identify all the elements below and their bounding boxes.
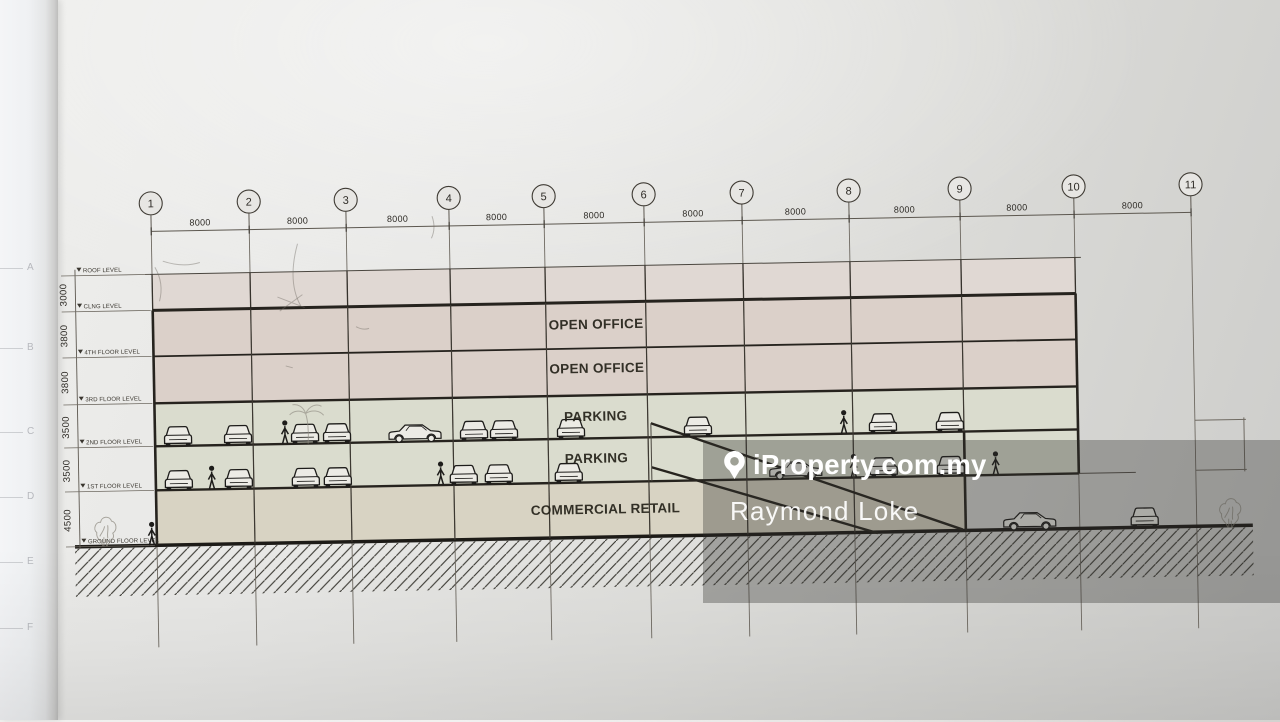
roof-column-stub xyxy=(152,274,153,310)
roof-column-stub xyxy=(347,271,348,307)
level-marker-icon xyxy=(80,484,85,488)
floor-label: PARKING xyxy=(565,450,629,466)
roof-column-stub xyxy=(545,267,546,303)
grid-number: 9 xyxy=(956,183,962,195)
level-label: 4TH FLOOR LEVEL xyxy=(84,349,140,356)
car-icon xyxy=(292,468,319,488)
bay-dimension: 8000 xyxy=(682,208,703,218)
level-tick xyxy=(61,274,150,276)
level-marker-icon xyxy=(80,440,85,444)
roof-column-stub xyxy=(1075,257,1076,293)
car-icon xyxy=(165,470,192,490)
grid-number: 6 xyxy=(640,189,646,201)
map-pin-icon xyxy=(723,450,746,480)
grid-number: 5 xyxy=(541,191,547,203)
roof-column-stub xyxy=(250,273,251,309)
grid-number: 2 xyxy=(246,197,252,209)
photo-of-section-drawing: { "colors": { "paper": "#e7e6e3", "roof_… xyxy=(0,0,1280,720)
level-marker-icon xyxy=(76,268,81,272)
bay-dimension: 8000 xyxy=(1122,200,1143,210)
car-icon xyxy=(936,412,963,432)
level-marker-icon xyxy=(81,539,86,543)
grid-number: 3 xyxy=(343,195,349,207)
floor-label: PARKING xyxy=(564,408,628,424)
level-tick xyxy=(63,356,152,358)
level-dimension: 3800 xyxy=(59,325,70,348)
level-tick xyxy=(62,310,151,312)
car-icon xyxy=(450,465,477,485)
car-icon xyxy=(869,414,896,434)
watermark-overlay: iProperty.com.my Raymond Loke xyxy=(703,440,1280,603)
grid-number: 11 xyxy=(1185,179,1197,191)
car-icon xyxy=(324,468,351,488)
level-label: CLNG LEVEL xyxy=(84,304,123,311)
reference-stub xyxy=(1195,419,1246,420)
grid-number: 10 xyxy=(1067,181,1079,193)
level-label: 3RD FLOOR LEVEL xyxy=(85,396,142,403)
level-marker-icon xyxy=(77,304,82,308)
bay-dimension: 8000 xyxy=(387,214,408,224)
bay-dimension: 8000 xyxy=(894,204,915,214)
floor-label: OPEN OFFICE xyxy=(549,360,644,377)
bay-dimension: 8000 xyxy=(785,206,806,216)
roof-column-stub xyxy=(743,264,744,300)
grid-number: 1 xyxy=(148,198,154,210)
car-icon xyxy=(485,465,512,485)
car-icon xyxy=(684,417,711,437)
level-marker-icon xyxy=(79,397,84,401)
level-dimension: 3800 xyxy=(60,371,71,394)
level-tick xyxy=(65,490,154,492)
car-icon xyxy=(225,469,252,489)
watermark-brand-row: iProperty.com.my xyxy=(723,449,986,481)
watermark-agent: Raymond Loke xyxy=(730,496,919,527)
floor-label: OPEN OFFICE xyxy=(548,316,643,333)
car-icon xyxy=(323,424,350,444)
level-label: ROOF LEVEL xyxy=(83,268,122,275)
grid-number: 8 xyxy=(845,186,851,198)
bay-dimension: 8000 xyxy=(287,215,308,225)
grid-number: 7 xyxy=(738,187,744,199)
grid-number: 4 xyxy=(446,193,452,205)
level-tick xyxy=(63,403,152,405)
roof-column-stub xyxy=(645,265,646,301)
level-label: 2ND FLOOR LEVEL xyxy=(86,439,143,446)
bay-dimension: 8000 xyxy=(583,210,604,220)
bay-dimension: 8000 xyxy=(1006,202,1027,212)
level-marker-icon xyxy=(78,350,83,354)
car-icon xyxy=(164,426,191,446)
watermark-brand: iProperty.com.my xyxy=(753,449,986,481)
level-label: 1ST FLOOR LEVEL xyxy=(87,483,143,490)
car-icon xyxy=(291,424,318,444)
level-tick xyxy=(64,446,153,448)
level-dimension: 3500 xyxy=(61,416,72,439)
level-dimension: 3500 xyxy=(61,459,72,482)
bay-dimension: 8000 xyxy=(189,217,210,227)
floor-label: COMMERCIAL RETAIL xyxy=(531,500,681,518)
car-icon xyxy=(460,421,487,441)
level-dimension: 3000 xyxy=(58,284,69,307)
roof-column-stub xyxy=(961,260,962,296)
roof-column-stub xyxy=(450,269,451,305)
car-icon xyxy=(555,463,582,483)
bay-dimension: 8000 xyxy=(486,212,507,222)
car-icon xyxy=(224,425,251,445)
car-icon xyxy=(490,420,517,440)
roof-column-stub xyxy=(850,262,851,298)
level-dimension: 4500 xyxy=(62,509,73,532)
section-drawing: 1800028000380004800058000680007800088000… xyxy=(0,0,1280,722)
